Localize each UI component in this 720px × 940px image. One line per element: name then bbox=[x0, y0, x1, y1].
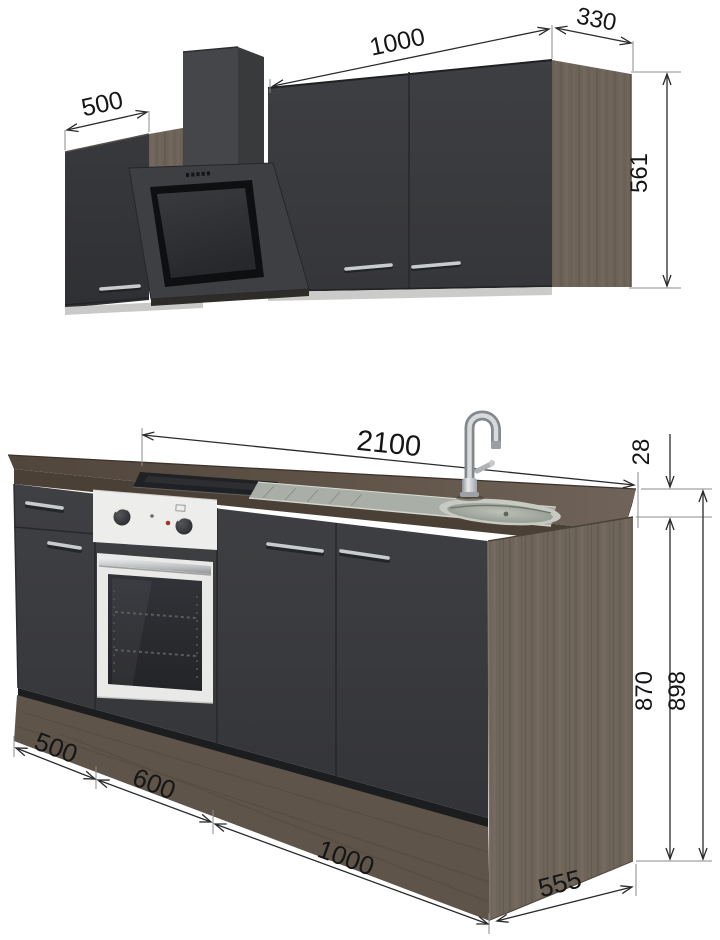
oven-indicator-dot bbox=[150, 514, 154, 518]
faucet-lever-knob bbox=[489, 460, 495, 466]
dim-upper-depth: 330 bbox=[574, 3, 618, 37]
dim-upper-left-width: 500 bbox=[79, 86, 126, 122]
hood-chimney-front bbox=[183, 47, 238, 171]
hood-chimney-side bbox=[238, 47, 264, 169]
wall-cabinet-left-handle bbox=[101, 286, 139, 291]
wall-cabinet-right-front bbox=[268, 60, 552, 292]
hood-button bbox=[196, 172, 199, 176]
hood-button bbox=[207, 171, 210, 175]
faucet-collar bbox=[460, 492, 479, 497]
hood-button bbox=[191, 173, 194, 177]
oven bbox=[93, 490, 217, 703]
diagram-canvas: 500 1000 330 561 2100 28 870 898 500 600… bbox=[0, 0, 720, 940]
hood-button bbox=[186, 173, 189, 177]
wall-cabinet-right-side-wood bbox=[552, 60, 631, 287]
kitchen-dimension-diagram: 500 1000 330 561 2100 28 870 898 500 600… bbox=[0, 0, 720, 940]
dim-worktop-thickness: 28 bbox=[628, 439, 655, 466]
dim-total-width: 2100 bbox=[355, 425, 422, 463]
dim-carcass-height: 870 bbox=[631, 671, 658, 711]
hood-button bbox=[202, 172, 205, 176]
dim-upper-height: 561 bbox=[626, 153, 653, 193]
hood-glass-panel bbox=[157, 188, 256, 278]
upper-wall-cabinet-right bbox=[268, 60, 631, 301]
sink-drain bbox=[504, 512, 509, 517]
faucet-spout-tip bbox=[491, 441, 501, 449]
oven-power-light bbox=[166, 521, 171, 526]
dim-total-height: 898 bbox=[664, 671, 691, 711]
base-side-panel-wood bbox=[488, 517, 633, 920]
wall-cabinet-left-front bbox=[65, 134, 149, 308]
